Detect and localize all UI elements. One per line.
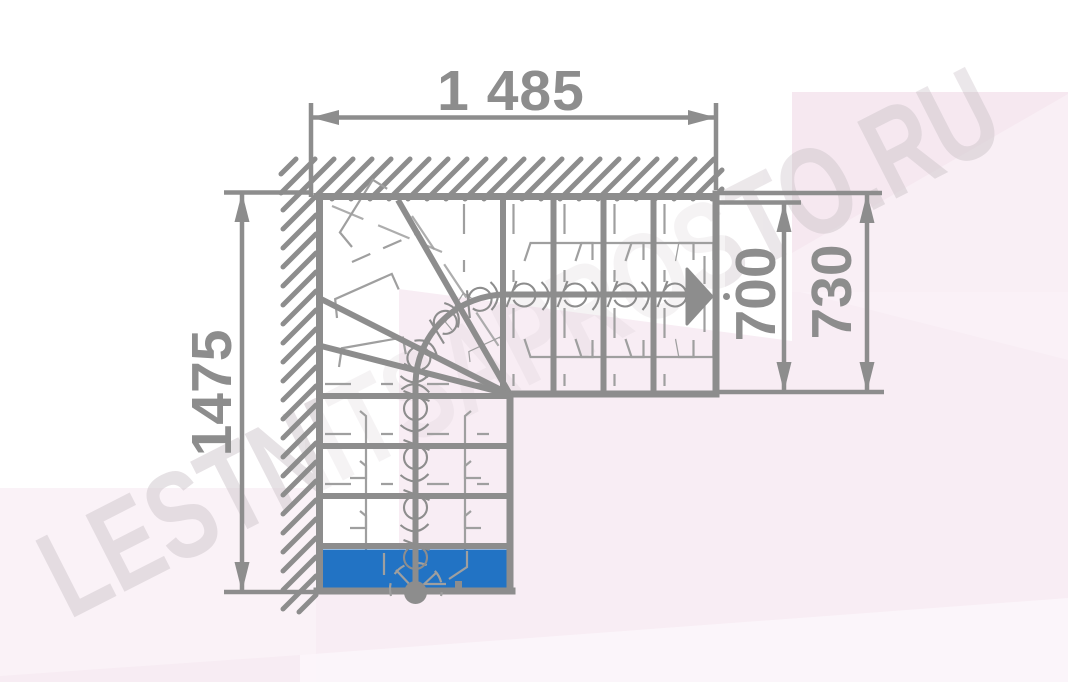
svg-text:1 485: 1 485: [437, 59, 585, 123]
svg-text:700: 700: [724, 246, 788, 341]
svg-text:1475: 1475: [180, 330, 244, 457]
svg-text:730: 730: [800, 244, 864, 339]
